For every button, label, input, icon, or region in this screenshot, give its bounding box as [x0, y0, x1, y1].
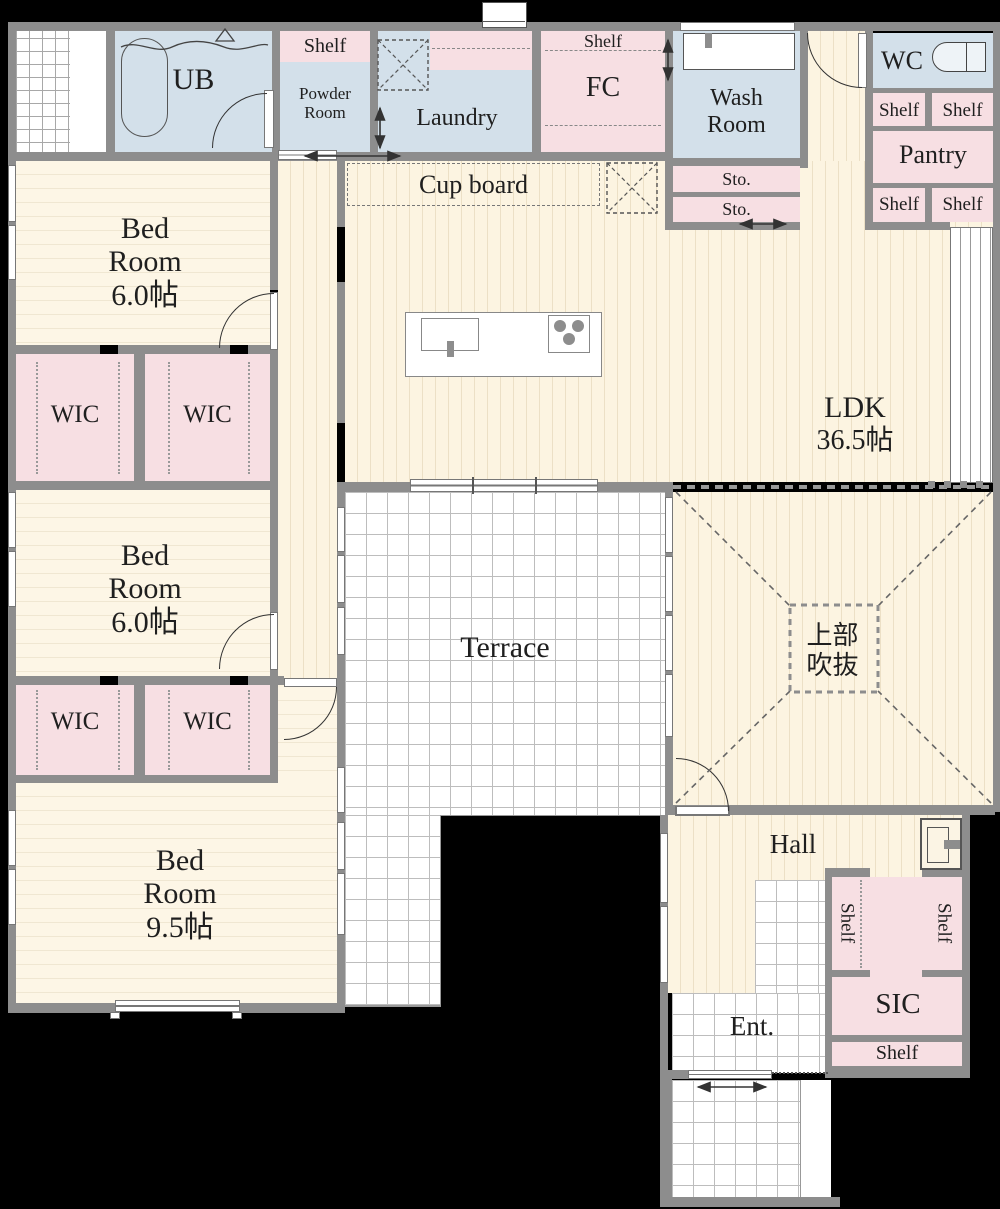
- label-pantry-shelf-a2: Shelf: [932, 95, 993, 126]
- window: [337, 607, 345, 655]
- burner-icon: [563, 333, 575, 345]
- hall-basin-tab: [944, 840, 960, 849]
- window-tick: [535, 477, 537, 494]
- label-pantry-shelf-a1: Shelf: [873, 95, 925, 126]
- wall: [665, 222, 800, 230]
- entrance-tiles1: [755, 880, 828, 993]
- sliding-door-powder: [278, 150, 337, 160]
- wall: [832, 970, 870, 977]
- wall: [8, 345, 100, 354]
- fc-shelf-line2: [545, 125, 661, 126]
- shelf-laundry: [430, 30, 532, 70]
- label-wic-2: WIC: [145, 390, 270, 440]
- label-fc-shelf: Shelf: [541, 30, 665, 52]
- label-sto2: Sto.: [673, 197, 800, 222]
- wall: [134, 685, 145, 775]
- door-leaf: [284, 678, 337, 687]
- label-fc: FC: [541, 64, 665, 112]
- label-sto1: Sto.: [673, 166, 800, 192]
- vent-box-line: [483, 21, 525, 22]
- label-wic-1: WIC: [16, 390, 134, 440]
- label-sic-shelf-left: Shelf: [832, 877, 862, 970]
- window: [8, 165, 16, 222]
- label-sic-shelf-bottom: Shelf: [832, 1041, 962, 1066]
- wall: [800, 22, 808, 168]
- wall: [8, 481, 278, 490]
- wall: [134, 354, 145, 481]
- deck-strip: [70, 25, 106, 152]
- corridor-left-floor: [278, 161, 337, 687]
- toilet-icon: [932, 42, 970, 72]
- wall: [370, 22, 378, 161]
- window: [8, 551, 16, 607]
- wall: [118, 676, 230, 685]
- wall: [8, 152, 673, 161]
- terrace-tiles-strip: [345, 815, 441, 1007]
- label-wash: Wash Room: [673, 78, 800, 146]
- kitchen-faucet-icon: [447, 341, 454, 357]
- sliding-window-terrace: [410, 479, 598, 492]
- wall: [337, 282, 345, 423]
- wall: [660, 1197, 840, 1207]
- label-ent: Ent.: [697, 1002, 807, 1050]
- label-terrace: Terrace: [380, 620, 630, 675]
- window: [660, 906, 668, 983]
- wall: [8, 676, 100, 685]
- label-powder: Powder Room: [280, 66, 370, 140]
- wall: [270, 161, 278, 290]
- window-tab: [232, 1012, 242, 1019]
- label-wic-3: WIC: [16, 697, 134, 747]
- label-ldk: LDK 36.5帖: [770, 385, 940, 463]
- window-tick: [472, 477, 474, 494]
- window: [660, 833, 668, 903]
- label-pantry-shelf-b2: Shelf: [932, 188, 993, 222]
- wall: [270, 490, 278, 613]
- label-bed1: Bed Room 6.0帖: [30, 206, 260, 318]
- label-bed3: Bed Room 9.5帖: [60, 838, 300, 950]
- wall: [270, 685, 278, 775]
- window: [665, 674, 673, 737]
- label-void: 上部 吹抜: [780, 608, 885, 693]
- wall: [248, 676, 284, 685]
- wall: [337, 161, 345, 227]
- wall: [993, 22, 1000, 812]
- window-band-ldk: [950, 227, 993, 483]
- window: [8, 869, 16, 925]
- floor-plan: UB Shelf Powder Room Laundry Shelf FC Wa…: [0, 0, 1000, 1209]
- window: [665, 556, 673, 612]
- window: [337, 822, 345, 870]
- wall: [8, 1003, 115, 1013]
- window: [665, 497, 673, 553]
- window: [665, 615, 673, 671]
- wall: [665, 22, 673, 230]
- window-tab: [110, 1012, 120, 1019]
- wall: [825, 1066, 970, 1078]
- wall: [865, 88, 1000, 93]
- label-bed2: Bed Room 6.0帖: [30, 533, 260, 645]
- window: [8, 810, 16, 866]
- pantry-divider-v1: [925, 93, 932, 126]
- window: [8, 492, 16, 548]
- wall: [106, 22, 115, 161]
- wall: [532, 22, 541, 161]
- wall: [118, 345, 230, 354]
- sliding-window-bed3: [115, 1000, 240, 1012]
- wall: [922, 970, 962, 977]
- label-hall: Hall: [738, 820, 848, 868]
- window: [337, 873, 345, 935]
- label-pantry: Pantry: [873, 130, 993, 180]
- label-cupboard: Cup board: [347, 163, 600, 206]
- pantry-divider-v2: [925, 188, 932, 222]
- label-wic-4: WIC: [145, 697, 270, 747]
- window: [680, 22, 795, 31]
- porch-tiles: [672, 1080, 800, 1197]
- label-sic-shelf-right: Shelf: [926, 877, 962, 970]
- window: [8, 225, 16, 280]
- sliding-door-entrance: [688, 1070, 772, 1079]
- window: [337, 507, 345, 552]
- burner-icon: [554, 320, 566, 332]
- wall: [865, 222, 950, 230]
- label-wc: WC: [873, 36, 931, 86]
- porch-step: [800, 1080, 831, 1197]
- sink-icon: [683, 33, 795, 70]
- toilet-tank-icon: [966, 42, 986, 72]
- sink-faucet-icon: [705, 33, 712, 48]
- wall: [673, 158, 800, 166]
- burner-icon: [572, 320, 584, 332]
- wall: [962, 815, 970, 1075]
- label-shelf-powder: Shelf: [280, 30, 370, 62]
- label-ub: UB: [115, 58, 272, 102]
- wall: [825, 868, 832, 1075]
- label-sic: SIC: [848, 980, 948, 1028]
- wall: [240, 1003, 345, 1013]
- deck-grid: [16, 25, 70, 152]
- window: [337, 767, 345, 813]
- window: [337, 555, 345, 603]
- label-pantry-shelf-b1: Shelf: [873, 188, 925, 222]
- label-laundry: Laundry: [382, 98, 532, 138]
- entrance-dotted-line: [772, 1072, 828, 1074]
- vent-box: [482, 2, 527, 28]
- wall: [270, 354, 278, 481]
- shelf-laundry-line: [432, 48, 530, 49]
- room-hall-floor2: [668, 880, 755, 993]
- wall: [8, 775, 278, 783]
- terrace-edge-line: [440, 815, 665, 816]
- wall: [660, 1078, 672, 1199]
